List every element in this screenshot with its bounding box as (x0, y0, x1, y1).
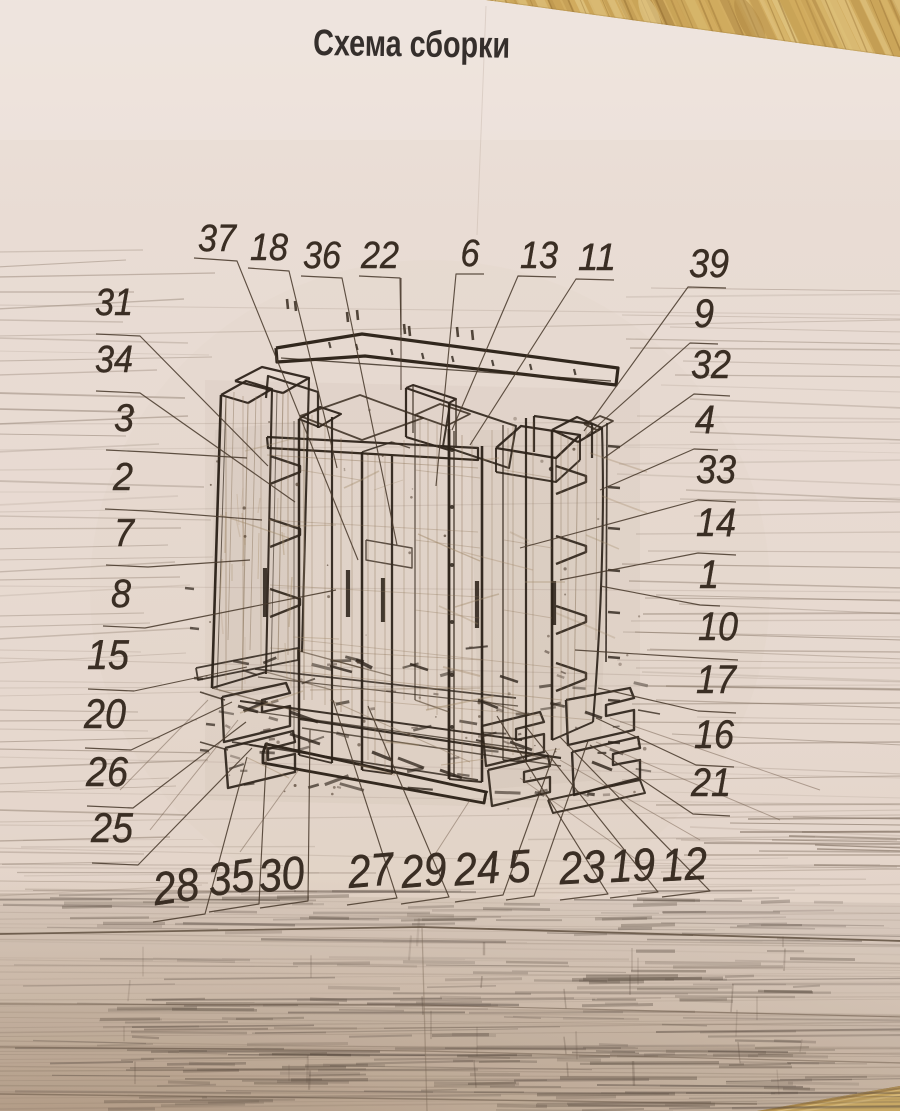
svg-text:12: 12 (660, 837, 709, 891)
svg-text:37: 37 (198, 218, 238, 260)
svg-text:18: 18 (250, 227, 288, 269)
svg-text:6: 6 (461, 233, 481, 275)
svg-text:31: 31 (95, 282, 133, 324)
svg-text:23: 23 (557, 840, 607, 894)
svg-text:5: 5 (506, 839, 533, 893)
svg-text:35: 35 (204, 848, 257, 906)
svg-text:20: 20 (83, 690, 126, 737)
svg-text:36: 36 (303, 235, 342, 277)
svg-text:26: 26 (85, 748, 128, 795)
svg-text:7: 7 (114, 512, 135, 555)
svg-text:1: 1 (699, 553, 719, 597)
svg-text:32: 32 (691, 343, 731, 387)
svg-text:39: 39 (689, 242, 729, 286)
svg-text:28: 28 (148, 857, 202, 915)
svg-text:15: 15 (87, 631, 130, 678)
svg-text:30: 30 (256, 846, 308, 903)
svg-text:13: 13 (520, 235, 558, 277)
svg-text:2: 2 (112, 456, 133, 499)
svg-text:25: 25 (90, 804, 133, 851)
svg-text:Схема сборки: Схема сборки (313, 22, 511, 66)
svg-text:24: 24 (451, 840, 501, 895)
svg-text:17: 17 (696, 658, 738, 702)
svg-text:9: 9 (694, 292, 714, 336)
svg-text:14: 14 (696, 501, 736, 545)
svg-text:11: 11 (578, 237, 616, 279)
svg-text:10: 10 (698, 605, 738, 649)
svg-text:19: 19 (608, 838, 657, 892)
svg-text:3: 3 (114, 397, 134, 440)
svg-text:34: 34 (95, 339, 133, 381)
svg-text:21: 21 (690, 761, 731, 805)
svg-text:4: 4 (695, 398, 715, 442)
svg-text:33: 33 (696, 448, 736, 492)
svg-text:8: 8 (111, 572, 132, 616)
svg-text:27: 27 (345, 842, 398, 898)
svg-text:29: 29 (398, 842, 449, 898)
svg-text:16: 16 (694, 713, 735, 757)
svg-text:22: 22 (360, 235, 399, 277)
